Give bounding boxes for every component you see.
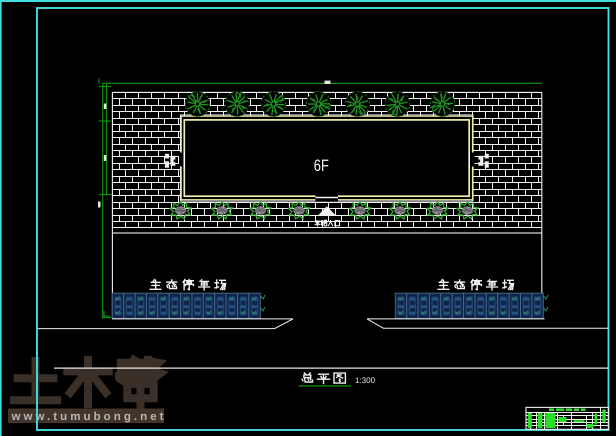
svg-text:6F: 6F — [314, 157, 329, 175]
svg-text:1:300: 1:300 — [355, 376, 376, 385]
svg-text:www.tumubong.net: www.tumubong.net — [11, 411, 167, 423]
